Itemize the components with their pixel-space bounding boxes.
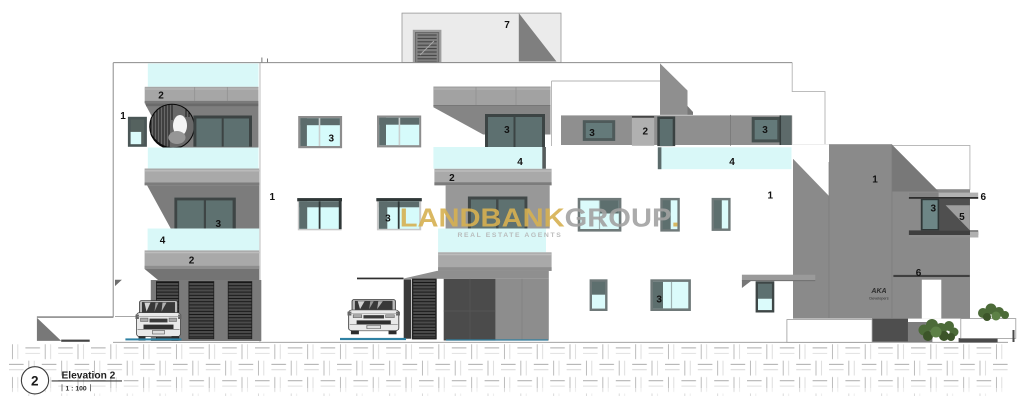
svg-text:2: 2 bbox=[31, 374, 39, 389]
svg-text:3: 3 bbox=[504, 125, 510, 136]
svg-text:2: 2 bbox=[643, 126, 649, 137]
svg-text:4: 4 bbox=[517, 157, 523, 168]
svg-text:AKA: AKA bbox=[870, 288, 886, 295]
svg-text:2: 2 bbox=[189, 256, 195, 267]
svg-text:1: 1 bbox=[872, 175, 878, 186]
svg-text:4: 4 bbox=[160, 235, 166, 246]
svg-text:5: 5 bbox=[959, 212, 965, 223]
svg-text:7: 7 bbox=[504, 20, 510, 31]
svg-text:3: 3 bbox=[329, 134, 335, 145]
svg-text:3: 3 bbox=[762, 125, 768, 136]
svg-text:2: 2 bbox=[449, 173, 455, 184]
svg-text:LANDBANKGROUP.: LANDBANKGROUP. bbox=[400, 203, 680, 232]
svg-text:1: 1 bbox=[120, 111, 126, 122]
svg-text:1: 1 bbox=[768, 191, 774, 202]
svg-text:3: 3 bbox=[931, 204, 937, 215]
svg-text:3: 3 bbox=[385, 214, 391, 225]
svg-text:6: 6 bbox=[981, 192, 987, 203]
svg-text:3: 3 bbox=[589, 128, 595, 139]
svg-text:Developers: Developers bbox=[869, 297, 888, 301]
svg-text:6: 6 bbox=[916, 268, 922, 279]
svg-text:3: 3 bbox=[656, 294, 662, 305]
svg-text:4: 4 bbox=[729, 157, 735, 168]
svg-text:Elevation 2: Elevation 2 bbox=[62, 371, 116, 382]
svg-text:1: 1 bbox=[270, 192, 276, 203]
svg-text:1 : 100: 1 : 100 bbox=[66, 385, 87, 392]
svg-text:2: 2 bbox=[158, 91, 164, 102]
svg-text:3: 3 bbox=[216, 219, 222, 230]
svg-text:REAL ESTATE AGENTS: REAL ESTATE AGENTS bbox=[458, 232, 563, 239]
